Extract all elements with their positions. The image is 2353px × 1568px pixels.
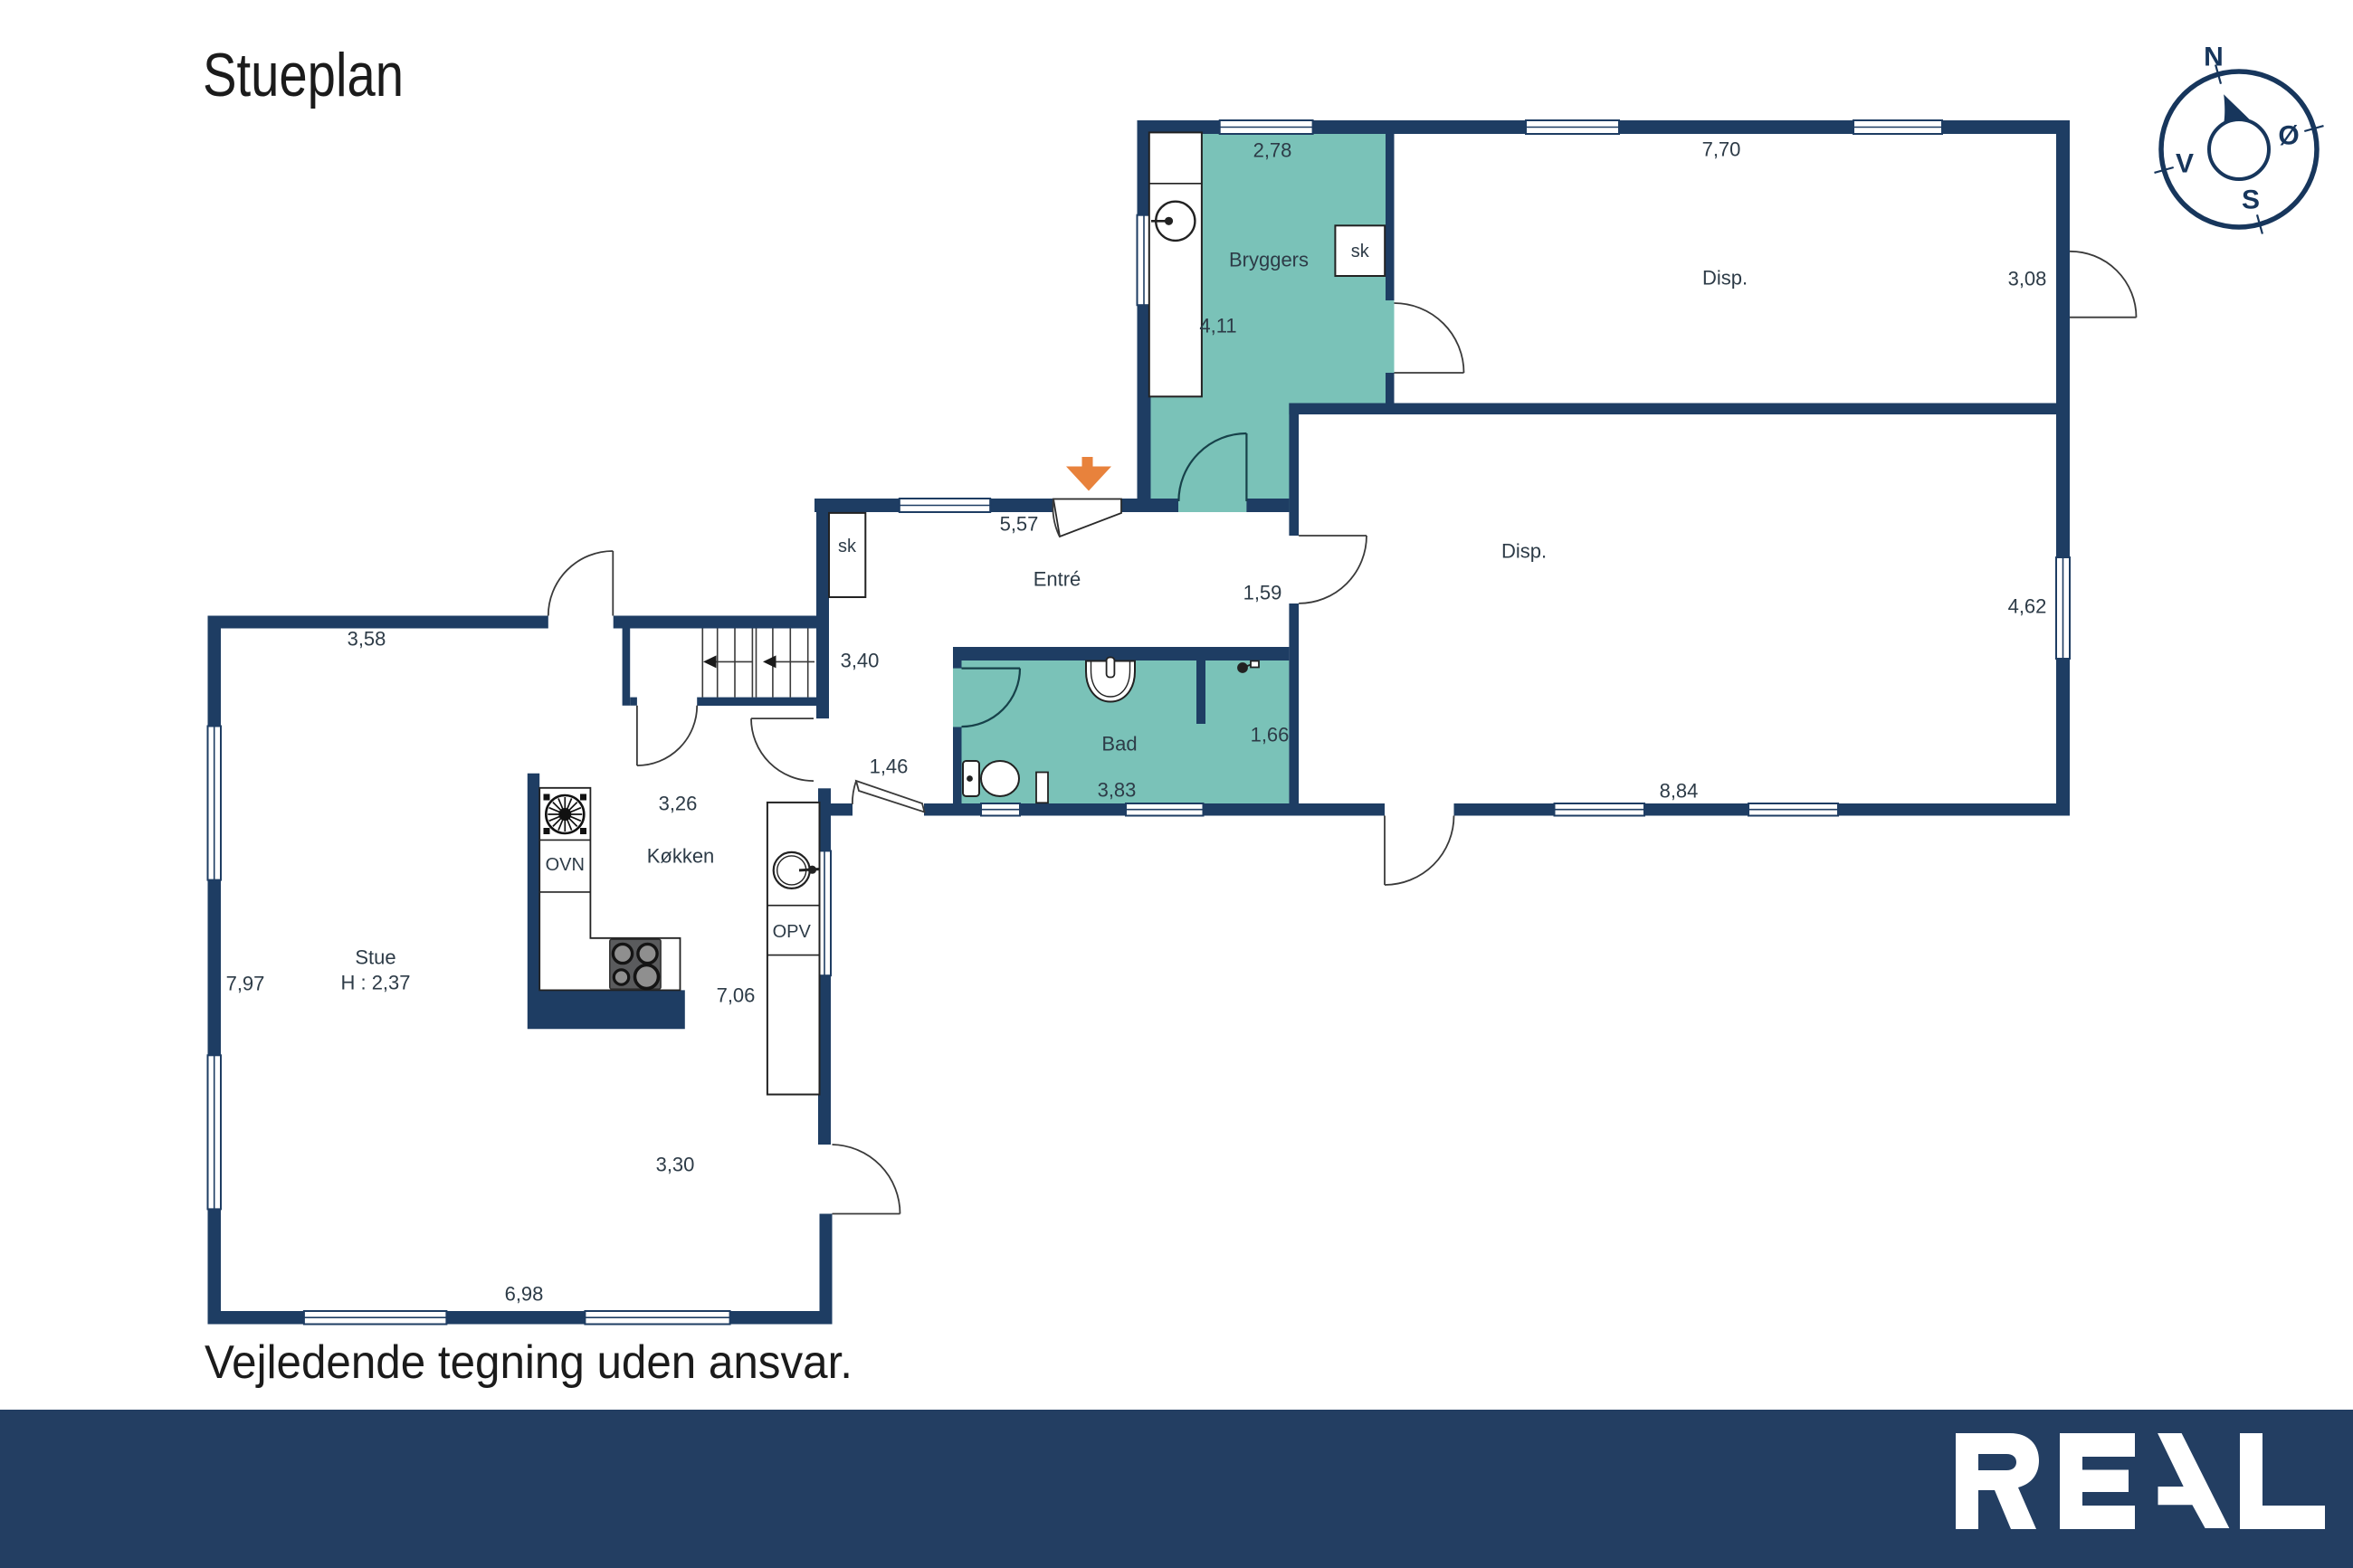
- svg-text:3,83: 3,83: [1098, 779, 1137, 802]
- svg-text:1,46: 1,46: [870, 755, 909, 778]
- svg-text:OPV: OPV: [773, 922, 812, 942]
- svg-text:Vejledende tegning uden ansvar: Vejledende tegning uden ansvar.: [205, 1336, 853, 1389]
- svg-text:7,97: 7,97: [226, 973, 265, 995]
- svg-text:7,70: 7,70: [1702, 138, 1741, 161]
- svg-text:H : 2,37: H : 2,37: [340, 972, 410, 994]
- svg-text:Køkken: Køkken: [647, 845, 715, 868]
- svg-text:Bryggers: Bryggers: [1229, 249, 1309, 271]
- svg-text:4,62: 4,62: [2008, 595, 2047, 618]
- svg-text:Entré: Entré: [1034, 568, 1081, 591]
- svg-text:Disp.: Disp.: [1501, 540, 1547, 563]
- svg-text:3,30: 3,30: [656, 1154, 695, 1176]
- svg-text:OVN: OVN: [546, 855, 585, 875]
- svg-text:4,11: 4,11: [1199, 315, 1236, 337]
- svg-text:5,57: 5,57: [1000, 513, 1039, 536]
- svg-text:3,58: 3,58: [348, 628, 386, 651]
- svg-text:7,06: 7,06: [717, 984, 756, 1007]
- svg-text:Stue: Stue: [355, 946, 395, 969]
- svg-text:3,08: 3,08: [2008, 268, 2047, 290]
- svg-text:Disp.: Disp.: [1702, 267, 1748, 290]
- svg-text:3,40: 3,40: [841, 650, 880, 672]
- svg-text:Ø: Ø: [2278, 121, 2299, 151]
- svg-text:V: V: [2176, 149, 2194, 179]
- svg-text:8,84: 8,84: [1660, 780, 1699, 803]
- svg-text:Stueplan: Stueplan: [203, 41, 404, 109]
- svg-text:S: S: [2242, 185, 2260, 215]
- svg-text:2,78: 2,78: [1253, 139, 1292, 162]
- svg-text:N: N: [2204, 43, 2224, 72]
- svg-text:Bad: Bad: [1101, 733, 1137, 755]
- svg-text:sk: sk: [838, 537, 857, 556]
- svg-text:6,98: 6,98: [505, 1283, 544, 1306]
- svg-text:sk: sk: [1351, 242, 1370, 261]
- svg-text:1,59: 1,59: [1243, 582, 1282, 604]
- svg-text:3,26: 3,26: [659, 793, 698, 815]
- svg-text:1,66: 1,66: [1251, 724, 1290, 746]
